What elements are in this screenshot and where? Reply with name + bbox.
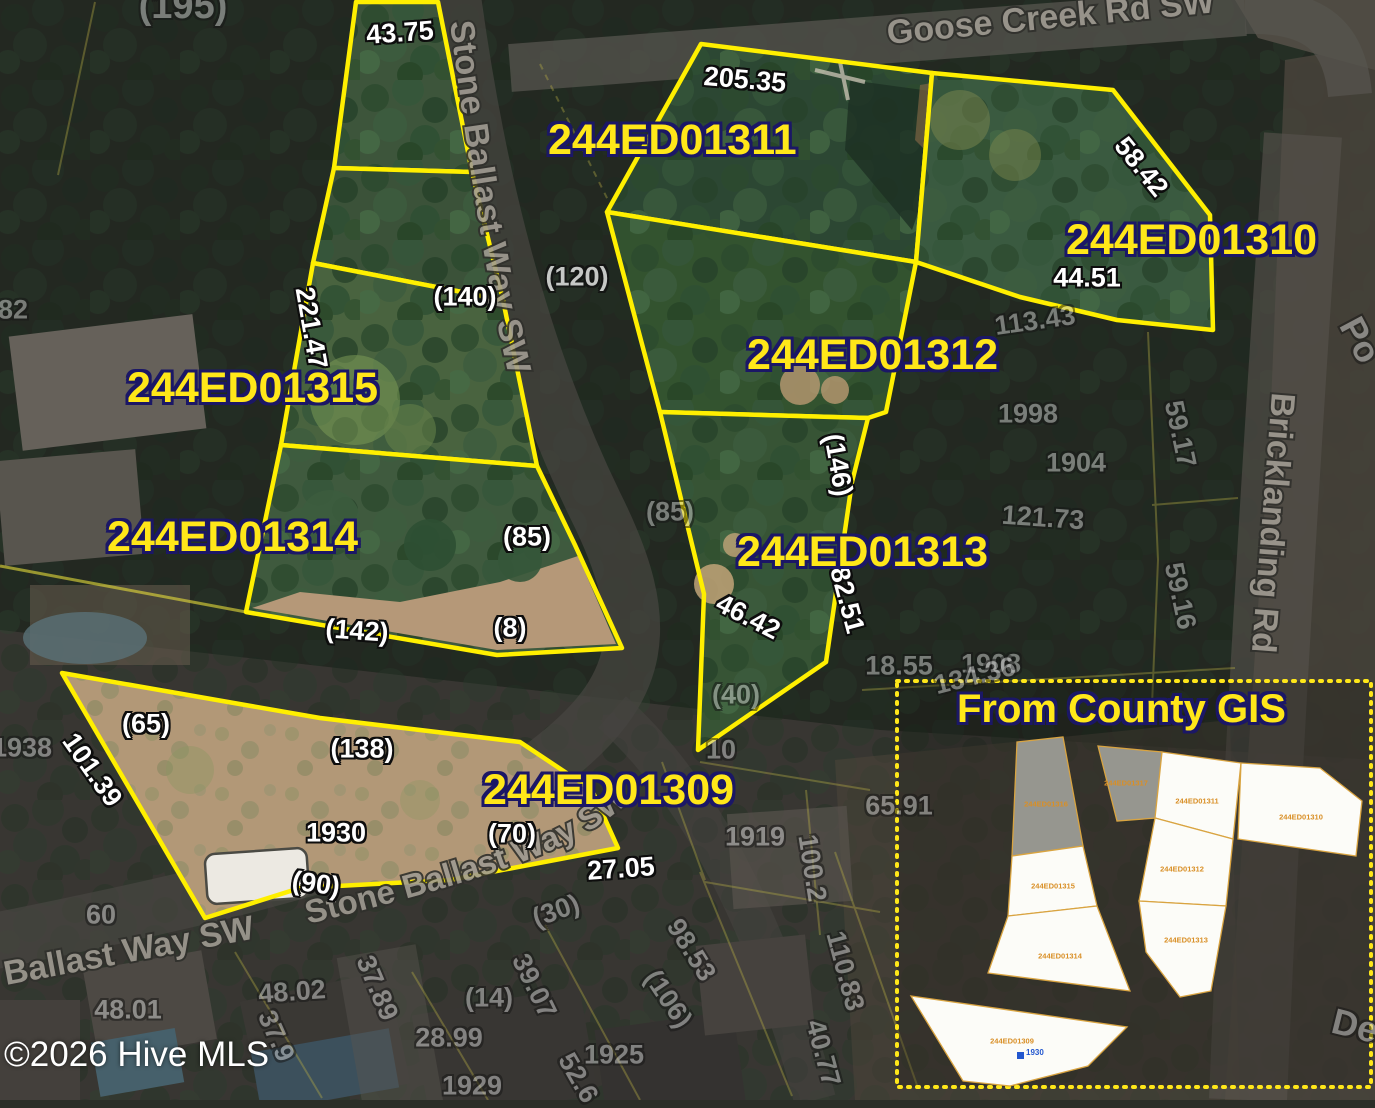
aerial-parcel-map: Goose Creek Rd SW Stone Ballast Way SW S… [0, 0, 1375, 1100]
inset-parcel-244ED01315 [1008, 846, 1097, 916]
rv-trailer [204, 848, 309, 905]
county-gis-inset [897, 681, 1371, 1087]
inset-marker-square [1017, 1052, 1024, 1059]
map-canvas: Goose Creek Rd SW Stone Ballast Way SW S… [0, 0, 1375, 1100]
